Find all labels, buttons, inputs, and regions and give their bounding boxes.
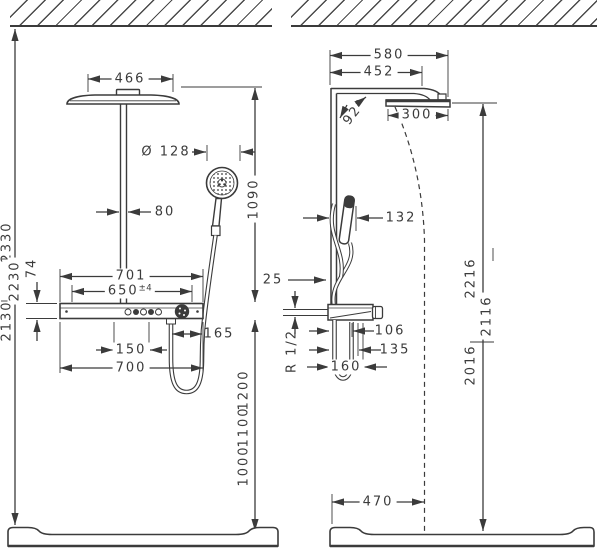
- overhead-shower-front: [67, 90, 179, 105]
- dim-452-label: 452: [361, 65, 398, 80]
- dim-135-label: 135: [380, 344, 411, 357]
- shower-tablet-front: [60, 304, 203, 319]
- dim-650-value: 650: [108, 284, 139, 299]
- dim-2230-label: 2230: [8, 257, 23, 304]
- dim-1200-label: 1200: [238, 369, 251, 410]
- dim-106-label: 106: [375, 325, 406, 338]
- overhead-shower-side: [386, 94, 450, 107]
- shower-tablet-side: [328, 305, 383, 321]
- dim-300-label: 300: [399, 108, 436, 123]
- dim-25-label: 25: [263, 274, 284, 287]
- dim-106: [309, 323, 374, 337]
- dim-650-tolerance: ±4: [139, 284, 153, 294]
- hand-shower-front: [207, 168, 238, 236]
- side-view: [283, 50, 594, 546]
- dim-2016-label: 2016: [465, 344, 478, 385]
- dim-25: [283, 280, 328, 334]
- shower-tray-side: [330, 528, 594, 547]
- dim-650-label: 650±4: [105, 284, 155, 299]
- dim-2116-label: 2116: [480, 292, 495, 339]
- dim-135: [309, 323, 381, 356]
- dim-74: [26, 282, 57, 341]
- dim-thread-label: R 1/2: [286, 329, 299, 373]
- dim-132-label: 132: [386, 212, 417, 225]
- shower-tray-front: [8, 528, 278, 547]
- dim-128-label: Ø 128: [141, 146, 190, 159]
- dim-701-label: 701: [113, 269, 150, 284]
- dim-700-label: 700: [113, 361, 150, 376]
- dim-2330-label: 2330: [1, 221, 14, 262]
- dim-470-label: 470: [360, 495, 397, 510]
- dim-2216-label: 2216: [465, 257, 478, 298]
- dim-80-label: 80: [155, 206, 176, 219]
- dim-165-label: 165: [204, 328, 235, 341]
- technical-drawing: [0, 0, 600, 548]
- dim-150-label: 150: [113, 343, 150, 358]
- dim-1100-label: 1100: [238, 406, 251, 447]
- dim-466-label: 466: [112, 72, 149, 87]
- dim-1000-label: 1000: [238, 445, 251, 486]
- dim-160-label: 160: [328, 360, 365, 375]
- dim-74-label: 74: [26, 258, 39, 279]
- dim-580-label: 580: [371, 48, 408, 63]
- blueprint: 2330 2230 2130 466 Ø 128 80 1090 74 701 …: [0, 0, 600, 548]
- hand-shower-side: [332, 196, 355, 306]
- dim-1090-label: 1090: [247, 175, 262, 222]
- dim-2130-label: 2130: [1, 300, 14, 341]
- dim-128: [192, 145, 255, 161]
